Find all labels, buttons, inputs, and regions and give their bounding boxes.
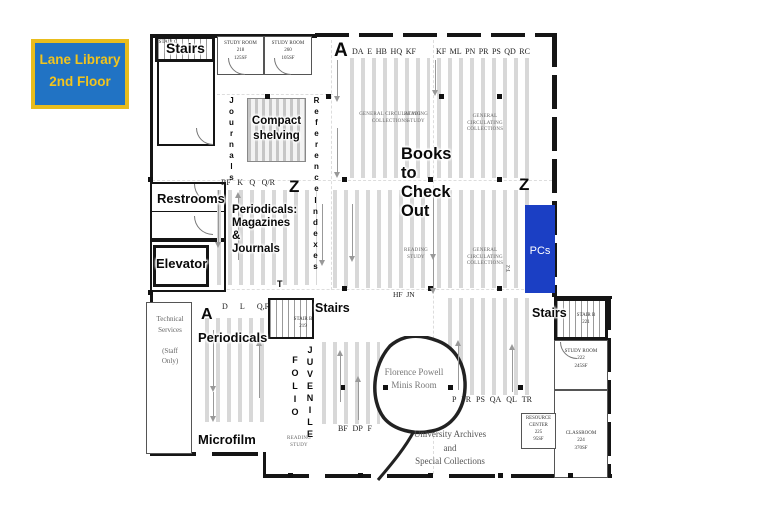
reference-label: Reference (312, 96, 321, 188)
column-marker (428, 473, 433, 478)
study-room-name: STUDY ROOM (218, 40, 263, 47)
technical-services-label: Technical Services (Staff Only) (150, 314, 190, 367)
call-number-label: QA (490, 395, 502, 404)
stairs-middle-label: Stairs (315, 301, 350, 315)
call-row-bottom-left: DLQ,R (222, 302, 270, 311)
column-marker (497, 94, 502, 99)
aisle-arrow-icon (433, 256, 434, 288)
study-room-222-label: STUDY ROOM 222 245SF (556, 348, 606, 370)
wall-connector (263, 452, 266, 478)
study-room-area: 245SF (556, 363, 606, 370)
call-number-label: P (452, 395, 456, 404)
resource-center-name: RESOURCE CENTER (522, 416, 555, 430)
call-number-label: HQ (391, 47, 403, 56)
aisle-arrow-icon (340, 356, 341, 402)
aisle-arrow-icon (352, 204, 353, 256)
juvenile-label: JUVENILE (305, 345, 315, 429)
grid-line (217, 94, 333, 95)
call-number-label: PR (479, 47, 489, 56)
pcs-side-call-range: T-Z (507, 265, 512, 272)
wall-top-dashed (315, 33, 557, 37)
call-number-label: L (240, 302, 245, 311)
column-marker (498, 473, 503, 478)
call-row-mid-left: BFKQQ/R (221, 178, 275, 187)
grid-line (152, 180, 552, 181)
general-circulating-label: GENERAL CIRCULATING COLLECTIONS (455, 248, 515, 268)
call-number-label: QD (504, 47, 516, 56)
call-number-label: E (367, 47, 372, 56)
pcs-area: PCs (525, 205, 555, 293)
call-number-label: D (222, 302, 228, 311)
stair-b-219-code: STAIR B 219 (293, 316, 313, 331)
call-letter-a-bottom: A (201, 306, 213, 324)
stair-code: STAIR B (293, 316, 313, 323)
call-number-label: PS (476, 395, 485, 404)
classroom-label: CLASSROOM 224 370SF (556, 430, 606, 452)
books-to-check-out-label: Books to Check Out (401, 145, 451, 221)
restrooms-divider (150, 211, 226, 212)
column-marker (439, 94, 444, 99)
call-number-label: Q (249, 178, 255, 187)
call-number-label: TR (522, 395, 532, 404)
aisle-arrow-icon (213, 392, 214, 416)
column-marker (326, 94, 331, 99)
study-room-218-label: STUDY ROOM 218 125SF (218, 40, 263, 62)
aisle-arrow-icon (512, 350, 513, 392)
journals-label: Journals (227, 96, 236, 176)
elevator-label: Elevator (156, 256, 207, 271)
study-room-260-label: STUDY ROOM 260 105SF (265, 40, 311, 62)
call-letter-z-left: Z (289, 177, 299, 197)
call-number-label: KF (436, 47, 446, 56)
column-marker (497, 286, 502, 291)
classroom-area: 370SF (556, 445, 606, 452)
stair-b-221-code: STAIR B 221 (572, 312, 600, 327)
resource-center-number: 225 (522, 430, 555, 437)
column-marker (288, 473, 293, 478)
column-marker (358, 473, 363, 478)
reading-study-label: READING STUDY (403, 112, 429, 125)
badge-line2: 2nd Floor (35, 74, 125, 89)
aisle-arrow-icon (337, 60, 338, 96)
column-marker (148, 177, 153, 182)
call-letter-z-right: Z (519, 175, 529, 195)
microfilm-label: Microfilm (198, 432, 256, 447)
aisle-arrow-icon (435, 60, 436, 90)
call-number-label: HB (376, 47, 387, 56)
periodicals-label: Periodicals (198, 330, 267, 345)
aisle-arrow-icon (358, 382, 359, 420)
florence-room-label: Florence Powell Minis Room (381, 366, 447, 391)
call-number-label: F (368, 424, 372, 433)
stairs-top-left-label: Stairs (166, 40, 205, 56)
classroom-number: 224 (556, 437, 606, 444)
study-room-area: 125SF (218, 55, 263, 62)
study-room-number: 218 (218, 47, 263, 54)
call-row-top-left: DAEHBHQKF (352, 47, 416, 56)
aisle-arrow-icon (259, 346, 260, 398)
call-number-label: DP (353, 424, 363, 433)
column-marker (148, 290, 153, 295)
compact-shelving-label: Compact shelving (247, 114, 306, 144)
study-room-number: 260 (265, 47, 311, 54)
archives-label: University Archives and Special Collecti… (408, 428, 492, 469)
folio-label: FOLIO (290, 355, 300, 425)
classroom-name: CLASSROOM (556, 430, 606, 437)
call-number-label: BF (221, 178, 231, 187)
aisle-arrow-icon (458, 346, 459, 390)
column-marker (568, 473, 573, 478)
call-number-label: PN (465, 47, 475, 56)
call-number-label: Q,R (257, 302, 270, 311)
periodicals-magazines-label: Periodicals: Magazines & Journals (232, 204, 297, 256)
stairs-right-label: Stairs (532, 306, 567, 320)
call-number-label: BF (338, 424, 348, 433)
column-marker (265, 94, 270, 99)
resource-center-area: 95SF (522, 437, 555, 444)
floor-plan: Lane Library 2nd Floor (0, 0, 768, 512)
call-number-label: RC (519, 47, 530, 56)
reading-study-label: READING STUDY (286, 436, 312, 449)
study-room-area: 105SF (265, 55, 311, 62)
call-row-bottom-right: PPRPSQAQLTR (452, 395, 532, 404)
grid-line (331, 40, 332, 290)
aisle-arrow-icon (337, 128, 338, 172)
call-number-label: KF (406, 47, 416, 56)
call-row-top-right: KFMLPNPRPSQDRC (436, 47, 530, 56)
call-number-label: DA (352, 47, 364, 56)
title-badge: Lane Library 2nd Floor (31, 39, 129, 109)
call-row-bottom-mid: BFDPF (338, 424, 372, 433)
study-room-name: STUDY ROOM (265, 40, 311, 47)
study-room-number: 222 (556, 355, 606, 362)
call-number-label: K (237, 178, 243, 187)
column-marker (497, 177, 502, 182)
resource-center-label: RESOURCE CENTER 225 95SF (522, 416, 555, 444)
call-number-label: ML (450, 47, 462, 56)
badge-line1: Lane Library (35, 52, 125, 67)
aisle-arrow-icon (322, 204, 323, 260)
column-marker (448, 385, 453, 390)
pcs-label: PCs (530, 245, 551, 257)
stair-number: 221 (572, 319, 600, 326)
column-marker (342, 177, 347, 182)
call-letter-a-top: A (334, 40, 348, 62)
indexes-label: Indexes (311, 196, 320, 276)
stair-number: 219 (293, 323, 313, 330)
study-room-name: STUDY ROOM (556, 348, 606, 355)
restrooms-label: Restrooms (157, 191, 225, 206)
column-marker (518, 385, 523, 390)
column-marker (342, 286, 347, 291)
call-number-label: PR (461, 395, 471, 404)
general-circulating-label: GENERAL CIRCULATING COLLECTIONS (455, 114, 515, 134)
stair-code: STAIR B (572, 312, 600, 319)
call-number-label: QL (506, 395, 517, 404)
reading-study-label: READING STUDY (403, 248, 429, 261)
call-number-label: Q/R (262, 178, 275, 187)
call-number-label: PS (492, 47, 501, 56)
call-letter-t: T (277, 279, 283, 289)
call-letters-hf-jn: HF JN (393, 290, 415, 299)
